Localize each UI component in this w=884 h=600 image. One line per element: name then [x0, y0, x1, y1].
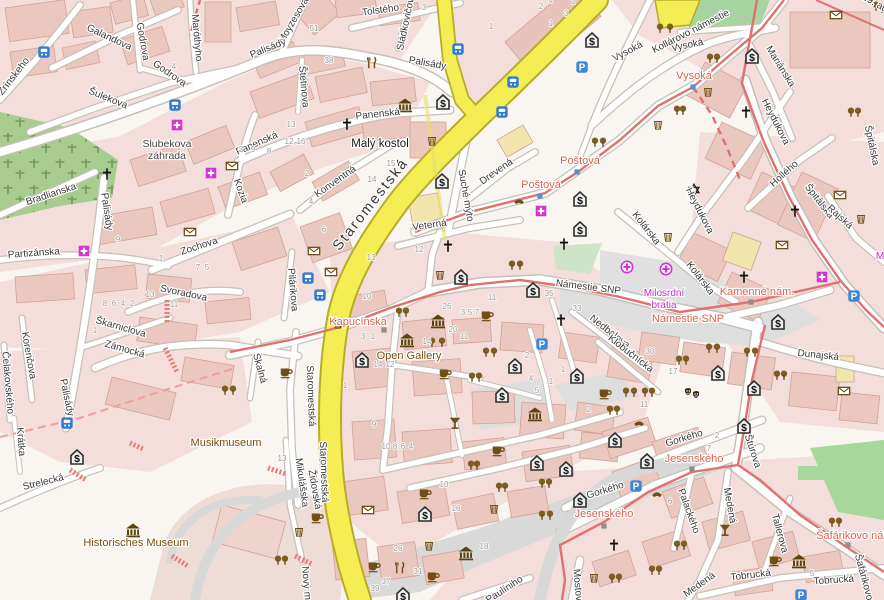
- num-label: 7: [196, 263, 201, 272]
- num-label: 2: [539, 2, 544, 11]
- pharmacy-icon: [172, 120, 183, 131]
- hospital-icon: [660, 263, 671, 274]
- num-label: 10: [382, 442, 391, 451]
- num-label: 9: [116, 235, 121, 244]
- poi-gray-label: Slubekova: [142, 138, 191, 150]
- num-label: 4: [172, 62, 177, 71]
- num-label: 13: [146, 290, 155, 299]
- stop-label: Jesenského: [575, 508, 634, 520]
- pharmacy-icon: [206, 168, 217, 179]
- bus-icon: [169, 99, 180, 110]
- poi-gray-label: záhrada: [148, 150, 186, 162]
- tram-stop-gray-icon: [748, 299, 753, 304]
- num-label: 16: [452, 504, 461, 513]
- post-icon: [325, 268, 336, 275]
- num-label: 37: [382, 577, 391, 586]
- num-label: 8: [103, 299, 108, 308]
- stop-label: Poštová: [521, 179, 562, 191]
- bus-icon: [302, 272, 313, 283]
- post-icon: [776, 241, 787, 248]
- num-label: 1: [549, 19, 554, 28]
- num-label: 11: [640, 400, 649, 409]
- num-label: 13: [287, 120, 296, 129]
- tram-stop-gray-icon: [689, 466, 694, 471]
- num-label: 1: [571, 0, 576, 6]
- num-label: 4: [409, 442, 414, 451]
- num-label: 1: [489, 22, 494, 31]
- poi-black-label: Malý kostol: [351, 138, 409, 150]
- num-label: 26: [443, 302, 452, 311]
- num-label: 35: [545, 289, 554, 298]
- bus-icon: [314, 289, 325, 300]
- num-label: 12: [415, 245, 424, 254]
- post-icon: [838, 387, 849, 394]
- pharmacy-icon: [79, 246, 90, 257]
- num-label: 14: [368, 175, 377, 184]
- pharmacy-icon: [817, 272, 828, 283]
- num-label: 1: [371, 332, 376, 341]
- num-label: 3: [361, 332, 366, 341]
- stop-label: Šafárikovo námestie: [816, 529, 884, 542]
- num-label: 5: [205, 263, 210, 272]
- tram-stop-gray-icon: [845, 542, 850, 547]
- bus-icon: [38, 46, 49, 57]
- num-label: 2: [130, 299, 135, 308]
- num-label: 8: [267, 147, 272, 156]
- num-label: 6: [668, 497, 673, 506]
- bus-icon: [61, 417, 72, 428]
- poi-magenta-label: M: [876, 251, 884, 262]
- tram-stop-blue-icon: [690, 84, 695, 89]
- num-label: 6: [401, 442, 406, 451]
- num-label: 1: [93, 326, 98, 335]
- street-label: Staromestská: [304, 365, 317, 427]
- num-label: 2: [525, 351, 530, 360]
- num-label: 18: [480, 542, 489, 551]
- tram-stop-blue-icon: [537, 193, 542, 198]
- post-icon: [834, 191, 845, 198]
- num-label: 30: [646, 347, 655, 356]
- num-label: 51: [310, 24, 319, 33]
- bus-icon: [496, 106, 507, 117]
- pharmacy-icon: [536, 206, 547, 217]
- num-label: 4: [309, 197, 314, 206]
- bus-icon: [507, 76, 518, 87]
- tram-stop-gray-icon: [381, 327, 386, 332]
- tram-stop-blue-icon: [574, 169, 579, 174]
- parking-icon: [536, 338, 547, 350]
- num-label: 5: [810, 569, 815, 578]
- num-label: 11: [488, 293, 497, 302]
- num-label: 17: [669, 367, 678, 376]
- num-label: 1: [343, 381, 348, 390]
- num-label: 4: [529, 374, 534, 383]
- tram-stop-gray-icon: [601, 523, 606, 528]
- parking-icon: [795, 589, 806, 600]
- map-canvas[interactable]: P $: [0, 0, 884, 600]
- hospital-icon: [621, 261, 632, 272]
- osm-map[interactable]: P $: [0, 0, 884, 600]
- num-label: 1: [549, 377, 554, 386]
- stop-label: Kapucínska: [329, 316, 387, 328]
- num-label: 9: [251, 145, 256, 154]
- bus-icon: [452, 43, 463, 54]
- num-label: 39: [371, 584, 380, 593]
- num-label: 33: [573, 304, 582, 313]
- post-icon: [184, 228, 195, 235]
- num-label: 12: [386, 360, 395, 369]
- parking-icon: [848, 290, 859, 302]
- num-label: 9: [372, 420, 377, 429]
- num-label: 6: [322, 225, 327, 234]
- num-label: 31: [414, 567, 423, 576]
- num-label: 13: [278, 454, 287, 463]
- num-label: 38: [325, 56, 334, 65]
- num-label: 16: [297, 137, 306, 146]
- num-label: 3: [239, 145, 244, 154]
- num-label: 20: [449, 325, 458, 334]
- num-label: 7: [707, 444, 712, 453]
- num-label: 5: [535, 386, 540, 395]
- poi-magenta-label: Milosrdní: [644, 288, 685, 299]
- num-label: 14: [423, 337, 432, 346]
- num-label: 11: [460, 332, 469, 341]
- num-label: 2: [587, 405, 592, 414]
- parking-icon: [630, 480, 641, 492]
- post-icon: [308, 247, 319, 254]
- stop-label: Vysoká: [676, 70, 713, 82]
- poi-magenta-label: bratia: [651, 300, 676, 311]
- num-label: 13: [367, 253, 376, 262]
- num-label: 10: [363, 292, 372, 301]
- num-label: 8: [393, 442, 398, 451]
- num-label: 14: [374, 360, 383, 369]
- num-label: 15: [387, 159, 396, 168]
- post-icon: [226, 162, 237, 169]
- num-label: 1: [561, 365, 566, 374]
- num-label: 3: [461, 308, 466, 317]
- stop-label: Kamenné nám.: [720, 286, 795, 298]
- stop-label: Poštová: [560, 155, 601, 167]
- num-label: 1: [159, 254, 164, 263]
- num-label: 5: [468, 308, 473, 317]
- parking-icon: [576, 61, 587, 73]
- poi-brown-label: Historisches Museum: [83, 537, 188, 549]
- num-label: 2: [715, 431, 720, 440]
- stop-label: Námestie SNP: [652, 313, 724, 325]
- poi-brown-label: Musikmuseum: [191, 437, 262, 449]
- num-label: 11: [170, 300, 179, 309]
- stop-label: Jesenského: [665, 453, 724, 465]
- num-label: 12: [285, 137, 294, 146]
- num-label: 3: [564, 9, 569, 18]
- post-icon: [830, 11, 841, 18]
- num-label: 4: [549, 0, 554, 5]
- post-icon: [362, 506, 373, 513]
- num-label: 6: [112, 299, 117, 308]
- num-label: 26: [394, 544, 403, 553]
- num-label: 10: [440, 480, 449, 489]
- num-label: 3: [422, 3, 427, 12]
- num-label: 7: [475, 308, 480, 317]
- num-label: 2: [305, 169, 310, 178]
- num-label: 4: [121, 299, 126, 308]
